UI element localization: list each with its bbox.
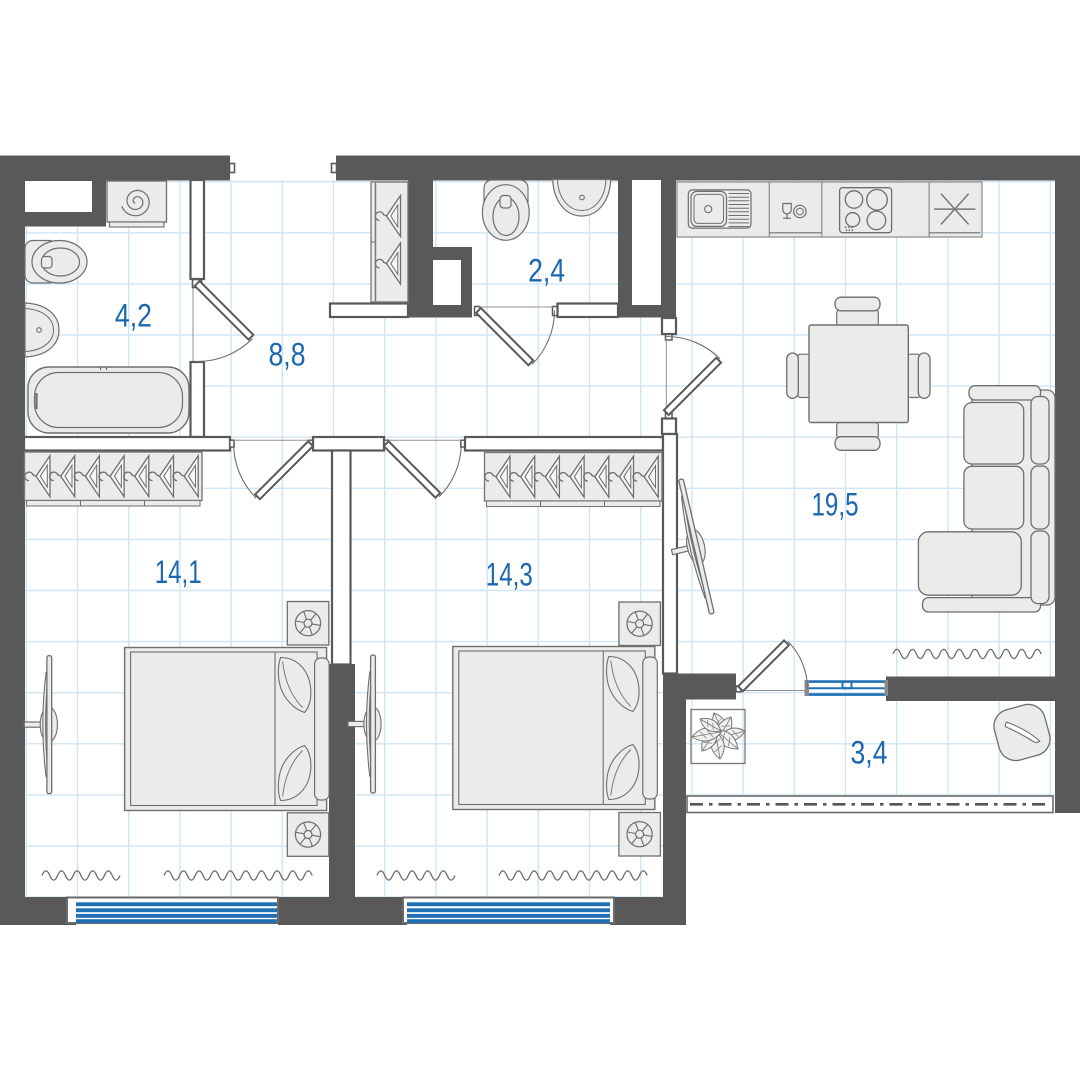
svg-text:19,5: 19,5: [812, 486, 859, 522]
svg-text:8,8: 8,8: [269, 337, 306, 373]
svg-text:14,3: 14,3: [486, 557, 533, 593]
svg-text:14,1: 14,1: [155, 554, 202, 590]
svg-text:2,4: 2,4: [528, 252, 565, 288]
svg-text:3,4: 3,4: [851, 734, 888, 770]
svg-text:4,2: 4,2: [115, 298, 152, 334]
